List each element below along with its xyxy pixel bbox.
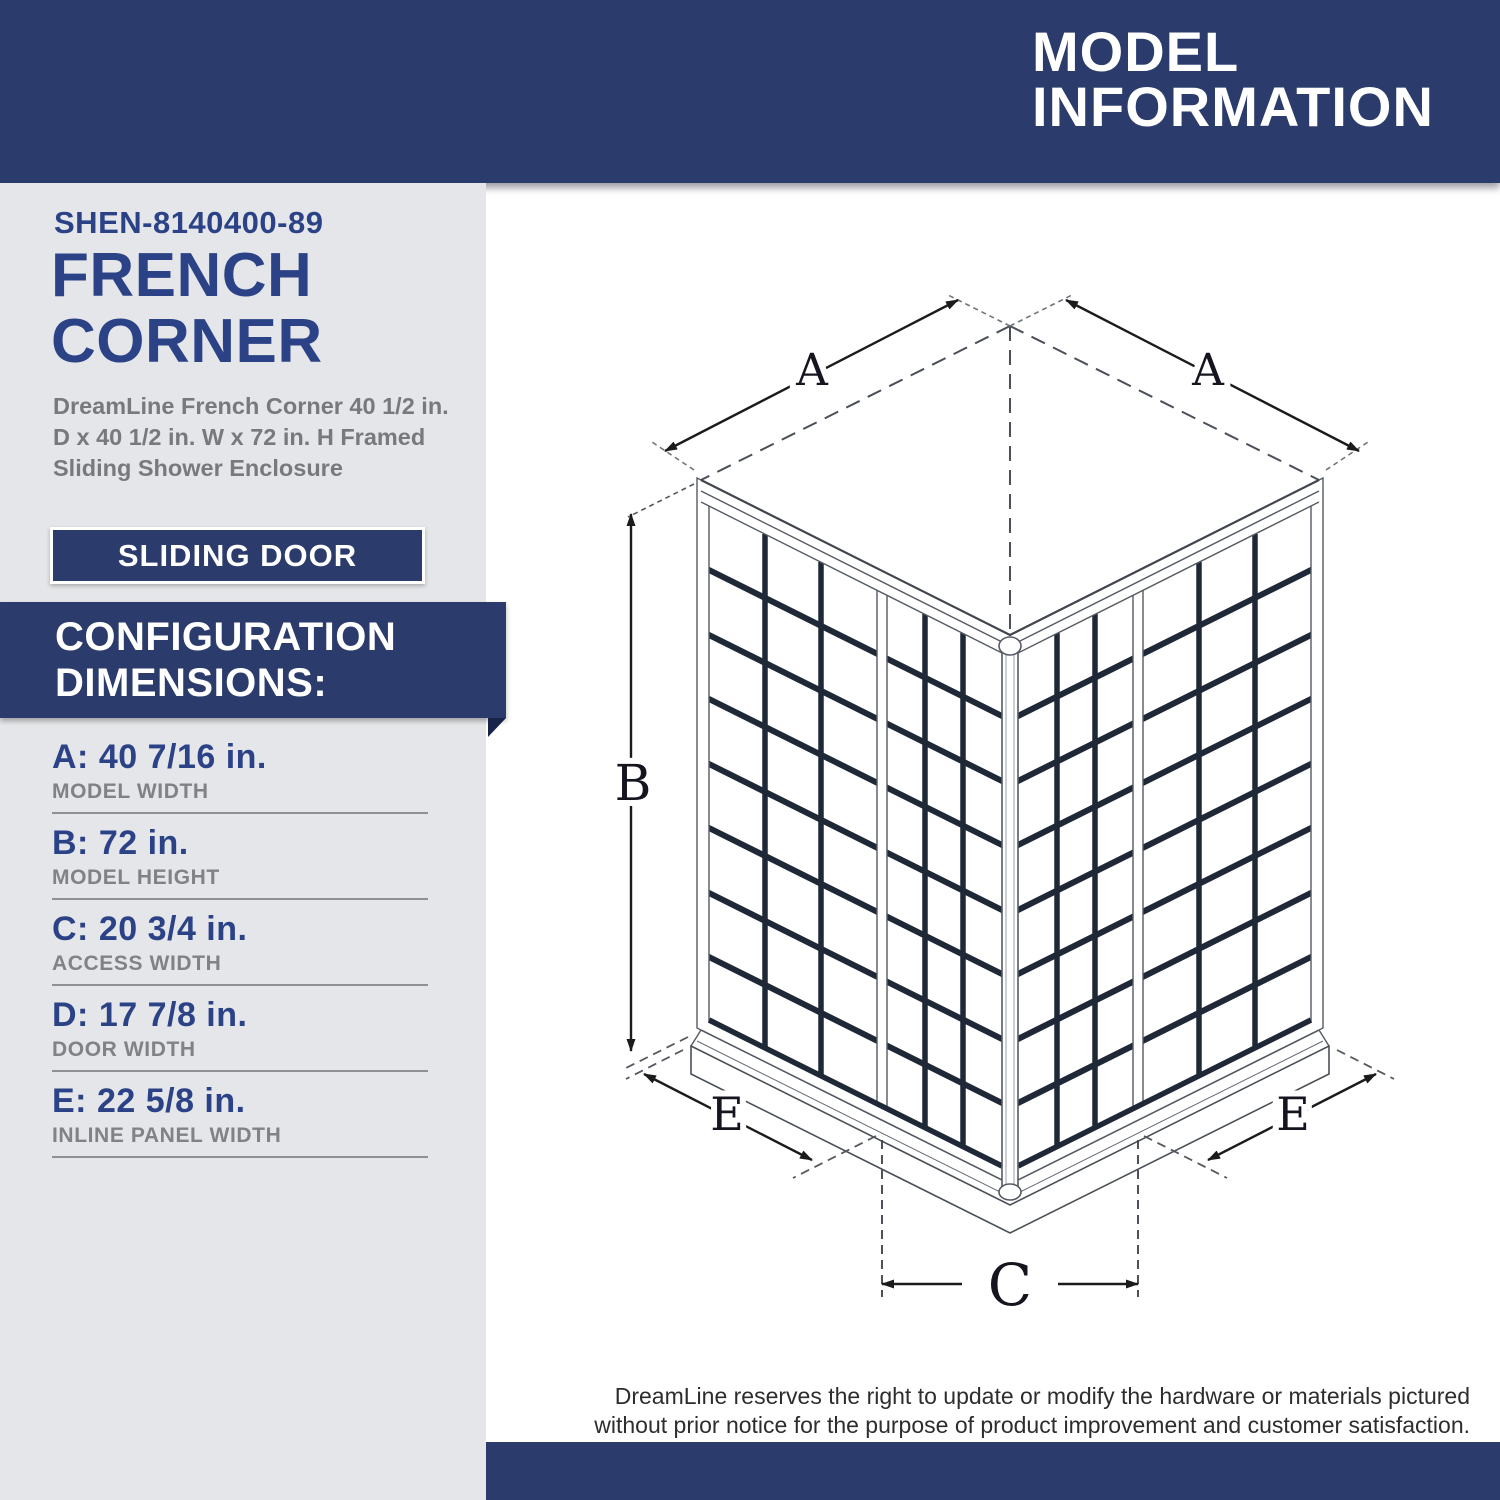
dimension-a-left-label: A	[795, 345, 829, 396]
dimension-b-label: B	[615, 754, 652, 812]
model-information-sheet: MODEL INFORMATION SHEN-8140400-89 FRENCH…	[0, 0, 1500, 1500]
dimension-a-right-label: A	[1191, 345, 1225, 396]
footer-bar	[486, 1442, 1500, 1500]
dimension-b: B	[615, 484, 694, 1070]
disclaimer-line2: without prior notice for the purpose of …	[550, 1411, 1470, 1440]
corner-post	[999, 637, 1021, 1200]
dimension-e-left-label: E	[710, 1087, 744, 1141]
disclaimer-line1: DreamLine reserves the right to update o…	[550, 1382, 1470, 1411]
apex-extension-lines	[946, 294, 1074, 326]
dimension-c-label: C	[988, 1251, 1032, 1319]
disclaimer: DreamLine reserves the right to update o…	[550, 1382, 1470, 1440]
dimension-e-right-label: E	[1276, 1087, 1310, 1141]
shower-enclosure-diagram: A A B E E	[0, 0, 1500, 1500]
